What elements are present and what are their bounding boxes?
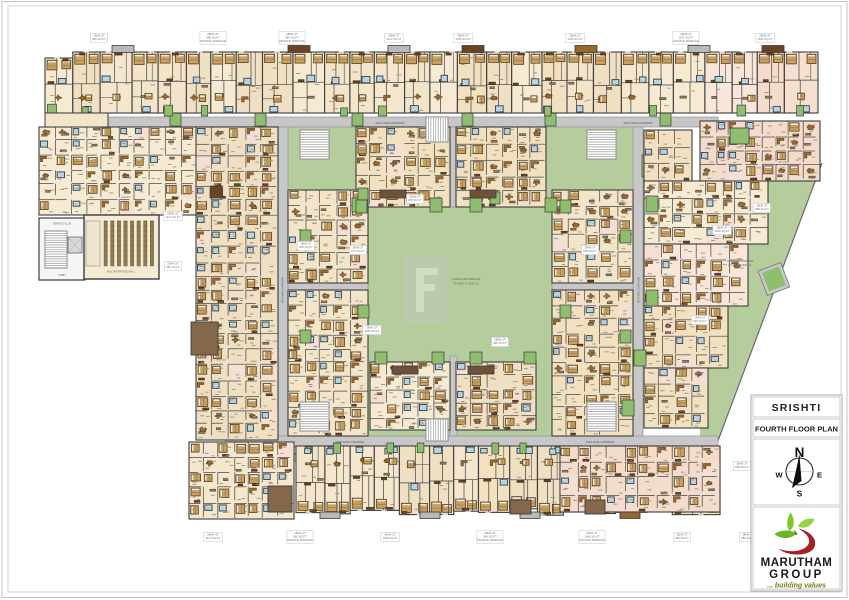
svg-text:LANDSCAPE TERRACE: LANDSCAPE TERRACE xyxy=(727,260,754,263)
svg-text:HIGH WIDE CORRIDOR: HIGH WIDE CORRIDOR xyxy=(638,276,641,303)
svg-text:MULTIPURPOSE HALL: MULTIPURPOSE HALL xyxy=(107,270,136,274)
svg-text:986 SQ.FT: 986 SQ.FT xyxy=(408,198,422,202)
svg-text:1046 SQ.FT: 1046 SQ.FT xyxy=(714,229,730,233)
svg-text:1046 SQ.FT: 1046 SQ.FT xyxy=(364,329,380,333)
svg-text:990 SQ.FT: 990 SQ.FT xyxy=(299,245,313,249)
svg-text:AT FIRST FLOOR LVL: AT FIRST FLOOR LVL xyxy=(453,282,480,286)
svg-text:HIGH WIDE CORRIDOR: HIGH WIDE CORRIDOR xyxy=(282,276,285,303)
svg-text:LANDSCAPE TERRACE: LANDSCAPE TERRACE xyxy=(452,277,481,281)
svg-text:AT FIRST FLOOR LVL: AT FIRST FLOOR LVL xyxy=(728,264,753,267)
svg-text:990 SQ.FT: 990 SQ.FT xyxy=(583,249,597,253)
svg-text:MAIN WIDE CORRIDOR: MAIN WIDE CORRIDOR xyxy=(624,121,653,125)
svg-text:986 SQ.FT: 986 SQ.FT xyxy=(735,465,749,469)
svg-text:MAIN WIDE CORRIDOR: MAIN WIDE CORRIDOR xyxy=(586,440,615,444)
svg-text:986 SQ.FT: 986 SQ.FT xyxy=(493,341,507,345)
svg-text:990 SQ.FT: 990 SQ.FT xyxy=(693,319,707,323)
svg-text:SERVICE CLUB: SERVICE CLUB xyxy=(53,223,72,226)
svg-text:986 SQ.FT: 986 SQ.FT xyxy=(755,207,769,211)
svg-text:LOBBY: LOBBY xyxy=(58,274,66,277)
svg-text:MAIN WIDE CORRIDOR: MAIN WIDE CORRIDOR xyxy=(376,121,405,125)
